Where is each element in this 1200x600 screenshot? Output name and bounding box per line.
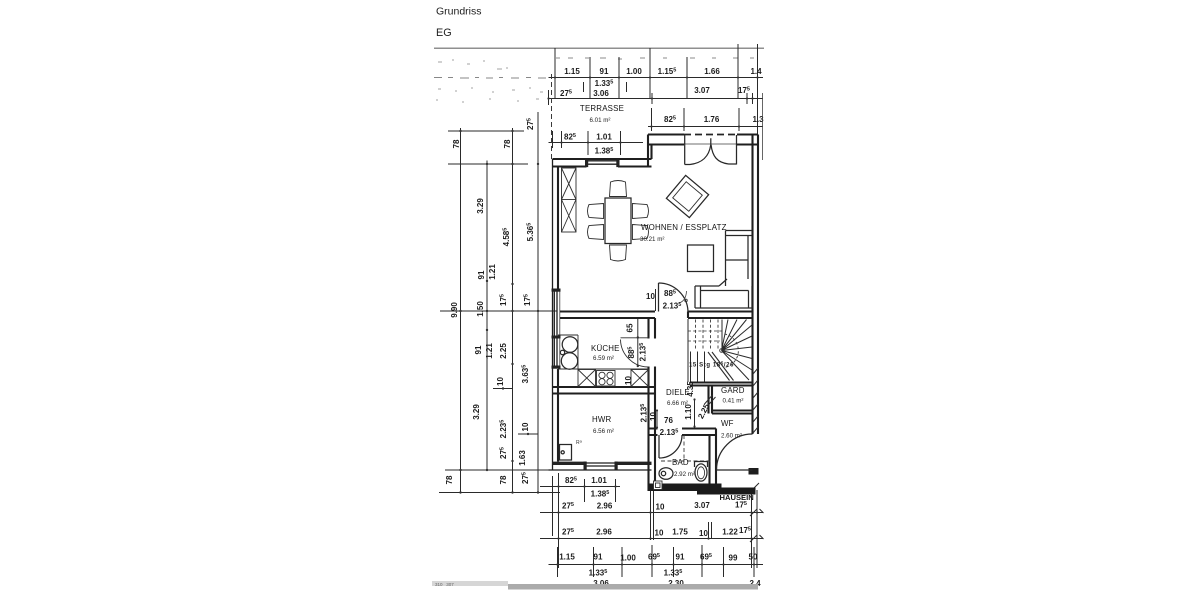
svg-text:1.75: 1.75 [672,528,688,537]
svg-text:2.135: 2.135 [640,404,649,423]
svg-text:2.96: 2.96 [596,528,612,537]
svg-text:1.15: 1.15 [564,67,580,76]
svg-text:275: 275 [521,472,530,484]
svg-text:2.235: 2.235 [499,420,508,439]
svg-text:3.635: 3.635 [521,365,530,384]
svg-text:0.41 m²: 0.41 m² [723,398,744,405]
svg-text:91: 91 [477,270,486,279]
svg-text:825: 825 [565,476,577,485]
svg-text:BAD: BAD [672,458,689,467]
svg-text:10: 10 [646,292,655,301]
svg-text:885: 885 [627,347,636,359]
svg-text:1.76: 1.76 [704,115,720,124]
svg-text:3.06: 3.06 [593,89,609,98]
svg-text:78: 78 [503,139,512,148]
svg-text:1.63: 1.63 [518,450,527,466]
svg-text:50: 50 [749,553,758,562]
svg-text:HWR: HWR [592,415,612,424]
svg-text:175: 175 [739,526,751,535]
svg-text:1.335: 1.335 [664,569,683,578]
svg-text:3.29: 3.29 [472,404,481,420]
svg-text:1.10: 1.10 [684,404,693,420]
svg-text:6.59 m²: 6.59 m² [593,355,614,362]
svg-text:65: 65 [626,323,635,332]
svg-text:1.01: 1.01 [596,133,612,142]
svg-text:175: 175 [499,294,508,306]
svg-text:275: 275 [562,502,574,511]
svg-text:EG: EG [436,27,452,39]
svg-text:KÜCHE: KÜCHE [591,344,620,353]
svg-text:TERRASSE: TERRASSE [580,104,624,113]
svg-text:2.135: 2.135 [660,428,679,437]
svg-text:175: 175 [738,86,750,95]
svg-text:30.21 m²: 30.21 m² [640,236,664,243]
svg-text:10: 10 [655,529,664,538]
svg-text:1.00: 1.00 [620,554,636,563]
svg-text:1.4: 1.4 [750,67,762,76]
svg-text:6.56 m²: 6.56 m² [593,428,614,435]
svg-text:2.60 m²: 2.60 m² [721,433,742,440]
svg-text:275: 275 [499,447,508,459]
svg-text:1.21: 1.21 [488,264,497,280]
svg-text:275: 275 [562,528,574,537]
svg-text:1.155: 1.155 [658,67,677,76]
svg-text:5.365: 5.365 [526,223,535,242]
svg-text:76: 76 [664,416,673,425]
svg-text:HAUSEIN: HAUSEIN [720,493,754,502]
svg-text:10: 10 [656,503,665,512]
svg-text:WOHNEN / ESSPLATZ: WOHNEN / ESSPLATZ [641,223,727,232]
svg-text:91: 91 [600,67,609,76]
svg-text:2.92 m²: 2.92 m² [674,471,695,478]
svg-text:695: 695 [648,553,660,562]
svg-text:1.335: 1.335 [589,569,608,578]
svg-text:4.585: 4.585 [502,228,511,247]
svg-text:91: 91 [474,345,483,354]
svg-text:GARD: GARD [721,386,745,395]
svg-text:3.07: 3.07 [694,501,710,510]
svg-text:3.29: 3.29 [476,198,485,214]
svg-text:9.90: 9.90 [450,302,459,318]
svg-text:91: 91 [676,553,685,562]
svg-text:10: 10 [496,377,505,386]
svg-text:695: 695 [700,553,712,562]
svg-text:78: 78 [499,475,508,484]
svg-text:1.15: 1.15 [559,553,575,562]
svg-text:4.35: 4.35 [686,381,695,397]
svg-text:6.01 m²: 6.01 m² [590,117,611,124]
svg-text:825: 825 [564,133,576,142]
svg-text:15 Stg 185/26: 15 Stg 185/26 [689,361,734,369]
svg-text:175: 175 [523,294,532,306]
svg-text:Ra: Ra [576,439,583,447]
svg-text:10: 10 [624,376,633,385]
svg-text:10: 10 [699,529,708,538]
svg-text:275: 275 [560,89,572,98]
svg-text:3.07: 3.07 [694,86,710,95]
svg-text:2.135: 2.135 [639,343,648,362]
svg-text:1.385: 1.385 [591,490,610,499]
svg-text:1.385: 1.385 [595,147,614,156]
svg-text:10: 10 [521,422,530,431]
svg-text:2.135: 2.135 [663,302,682,311]
svg-text:1.21: 1.21 [485,343,494,359]
svg-text:78: 78 [445,475,454,484]
svg-text:WF: WF [721,419,734,428]
svg-text:275: 275 [526,118,535,130]
svg-text:1.22: 1.22 [722,528,738,537]
svg-text:99: 99 [729,554,738,563]
svg-text:825: 825 [664,115,676,124]
svg-text:1.50: 1.50 [476,301,485,317]
svg-text:2.25: 2.25 [499,343,508,359]
svg-text:1.66: 1.66 [704,67,720,76]
svg-text:885: 885 [664,289,676,298]
svg-text:2.96: 2.96 [597,502,613,511]
svg-text:1.00: 1.00 [626,67,642,76]
svg-text:1.01: 1.01 [591,476,607,485]
svg-text:78: 78 [452,139,461,148]
svg-text:Grundriss: Grundriss [436,6,482,18]
svg-text:310 307: 310 307 [435,582,454,587]
svg-text:10: 10 [649,412,658,421]
svg-text:91: 91 [594,553,603,562]
svg-text:1.335: 1.335 [595,79,614,88]
